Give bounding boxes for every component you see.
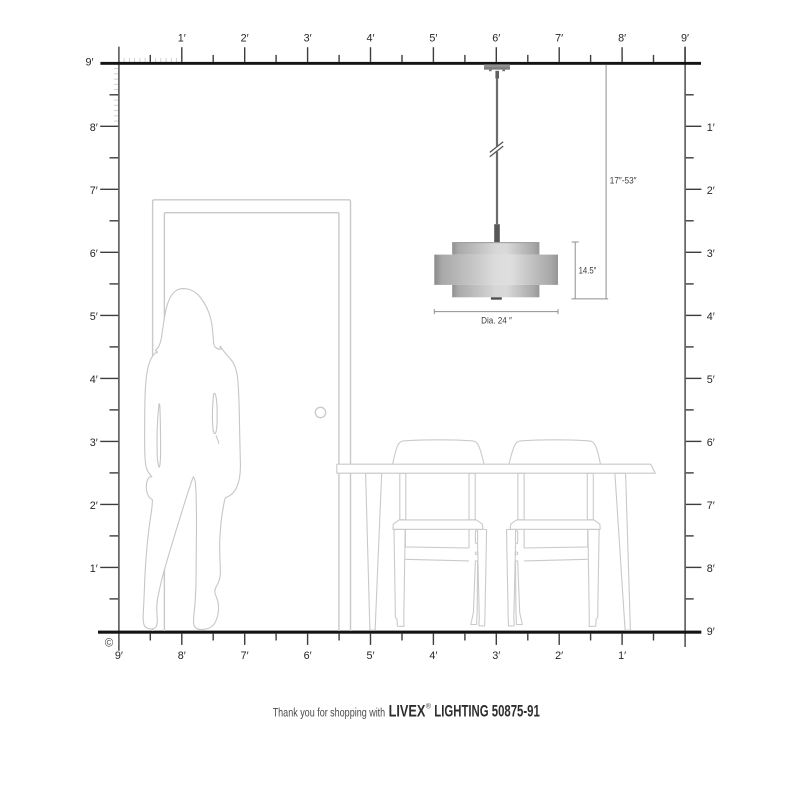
svg-text:5′: 5′	[90, 311, 98, 323]
svg-text:LIVEX: LIVEX	[389, 702, 426, 721]
svg-text:2′: 2′	[707, 185, 715, 197]
svg-text:14.5″: 14.5″	[579, 265, 597, 275]
svg-text:6′: 6′	[707, 437, 715, 449]
svg-text:9′: 9′	[85, 57, 93, 69]
svg-text:5′: 5′	[366, 650, 374, 662]
svg-text:9′: 9′	[707, 626, 715, 638]
svg-text:9′: 9′	[681, 32, 689, 44]
svg-text:4′: 4′	[90, 374, 98, 386]
svg-text:8′: 8′	[618, 32, 626, 44]
svg-text:2′: 2′	[90, 500, 98, 512]
svg-text:6′: 6′	[492, 32, 500, 44]
svg-text:6′: 6′	[90, 248, 98, 260]
svg-text:®: ®	[426, 703, 432, 711]
svg-text:4′: 4′	[429, 650, 437, 662]
svg-text:Thank you for shopping with: Thank you for shopping with	[273, 706, 386, 720]
svg-text:4′: 4′	[366, 32, 374, 44]
svg-text:2′: 2′	[241, 32, 249, 44]
svg-text:8′: 8′	[90, 122, 98, 134]
svg-text:7′: 7′	[707, 500, 715, 512]
svg-text:5′: 5′	[707, 374, 715, 386]
svg-text:1′: 1′	[618, 650, 626, 662]
svg-text:Dia. 24 ″: Dia. 24 ″	[481, 316, 512, 326]
svg-text:3′: 3′	[90, 437, 98, 449]
svg-text:©: ©	[105, 638, 114, 650]
svg-text:1′: 1′	[707, 122, 715, 134]
svg-text:7′: 7′	[241, 650, 249, 662]
svg-text:3′: 3′	[304, 32, 312, 44]
svg-text:LIGHTING 50875-91: LIGHTING 50875-91	[434, 702, 540, 721]
svg-text:1′: 1′	[178, 32, 186, 44]
svg-text:1′: 1′	[90, 563, 98, 575]
svg-text:8′: 8′	[707, 563, 715, 575]
svg-text:7′: 7′	[90, 185, 98, 197]
svg-text:4′: 4′	[707, 311, 715, 323]
svg-text:5′: 5′	[429, 32, 437, 44]
svg-text:6′: 6′	[304, 650, 312, 662]
svg-text:7′: 7′	[555, 32, 563, 44]
svg-text:2′: 2′	[555, 650, 563, 662]
svg-text:17″-53″: 17″-53″	[610, 176, 637, 186]
svg-text:9′: 9′	[115, 650, 123, 662]
svg-text:8′: 8′	[178, 650, 186, 662]
svg-text:3′: 3′	[492, 650, 500, 662]
svg-text:3′: 3′	[707, 248, 715, 260]
